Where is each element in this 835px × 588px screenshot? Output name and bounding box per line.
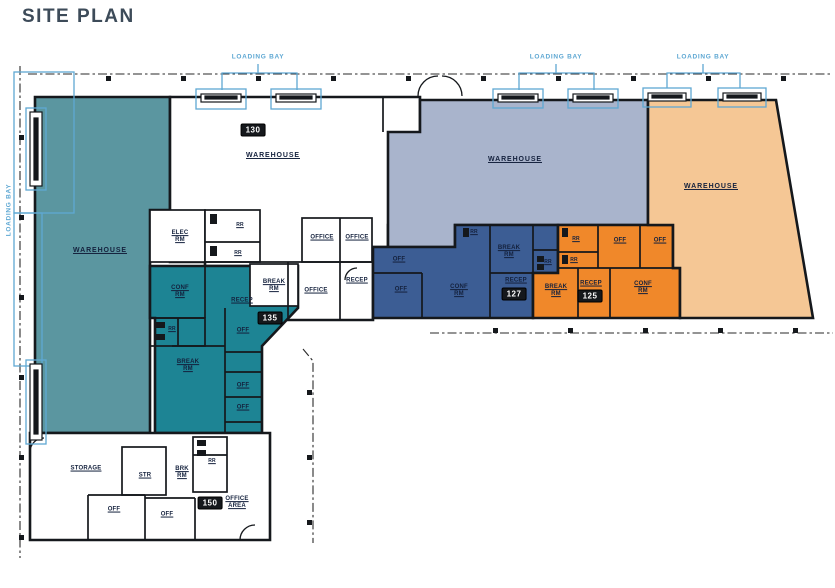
break-room-130 <box>250 264 298 306</box>
site-plan-page: SITE PLAN <box>0 0 835 588</box>
unit-footprints <box>30 97 813 540</box>
floor-plan-drawing <box>0 0 835 588</box>
elec-room <box>150 210 205 262</box>
suite-150-footprint <box>30 433 270 540</box>
